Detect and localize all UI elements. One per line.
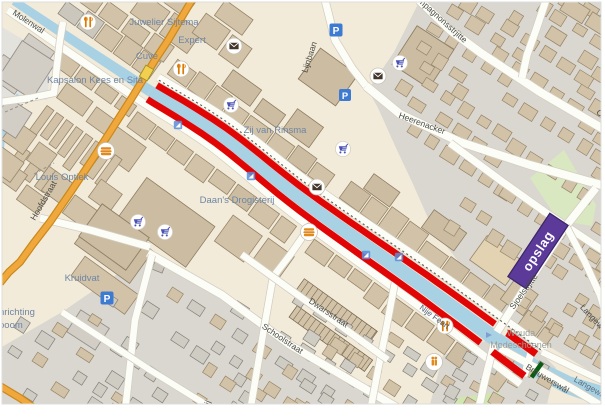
svg-text:Cuvé: Cuvé [136,51,158,62]
svg-text:nrichting: nrichting [0,307,35,318]
svg-text:Juwelier Sijtema: Juwelier Sijtema [129,17,199,28]
svg-text:boom: boom [0,320,23,331]
svg-text:Louis Optiek: Louis Optiek [36,172,89,183]
svg-text:Kruidvat: Kruidvat [65,273,100,284]
svg-text:P: P [342,90,348,101]
svg-text:Expert: Expert [178,35,206,46]
svg-text:P: P [104,294,111,305]
svg-text:Wouda: Wouda [507,328,535,338]
svg-text:Zij van Rinsma: Zij van Rinsma [244,125,308,136]
svg-text:P: P [333,26,340,37]
svg-text:Daan's Drogisterij: Daan's Drogisterij [200,195,275,206]
svg-text:Kapsalon Kees en Sita: Kapsalon Kees en Sita [47,75,144,86]
svg-text:Modeschoenen: Modeschoenen [490,340,552,350]
